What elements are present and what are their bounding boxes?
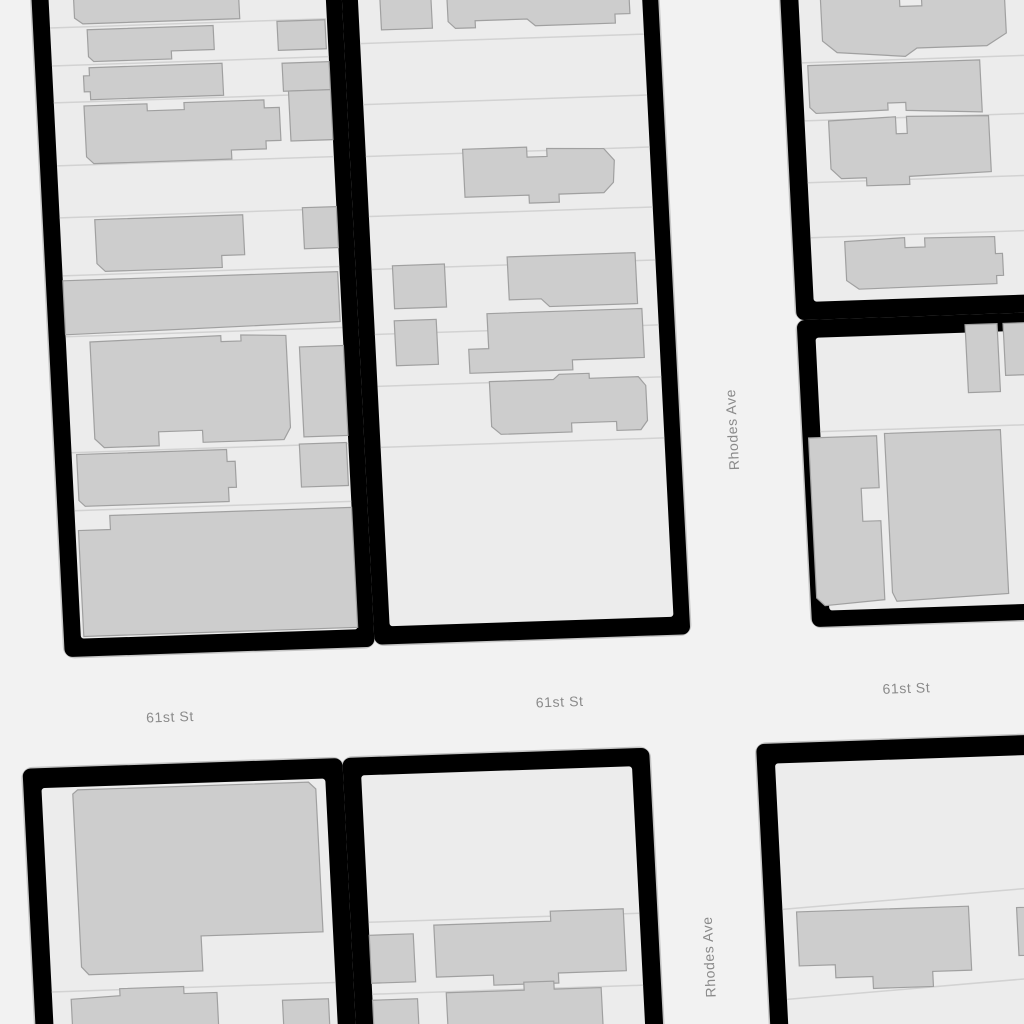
building-footprint [90, 333, 291, 448]
building-footprint [965, 324, 1000, 393]
building-footprint [392, 264, 446, 309]
building-footprint [299, 346, 348, 437]
street-label: 61st St [882, 679, 931, 697]
building-footprint [884, 430, 1008, 602]
building-footprint [78, 507, 358, 636]
building-footprint [378, 0, 432, 30]
map-canvas[interactable]: 61st St61st St61st StRhodes AveRhodes Av… [0, 0, 1024, 1024]
building-footprint [288, 90, 333, 141]
building-footprint [83, 63, 224, 100]
building-footprint [282, 999, 333, 1024]
building-footprint [77, 449, 238, 506]
building-footprint [373, 999, 423, 1024]
building-footprint [277, 20, 326, 51]
building-footprint [507, 253, 638, 308]
building-footprint [302, 207, 338, 249]
building-footprint [809, 436, 885, 606]
street-label: 61st St [535, 693, 584, 711]
building-footprint [299, 443, 348, 488]
building-footprint [1003, 322, 1024, 376]
building-footprint [369, 934, 415, 983]
building-footprint [845, 234, 1004, 289]
building-footprint [394, 319, 438, 365]
map-viewport[interactable]: 61st St61st St61st StRhodes AveRhodes Av… [0, 0, 1024, 1024]
building-footprint [489, 371, 648, 434]
building-footprint [282, 62, 330, 92]
street-label: 61st St [146, 708, 195, 726]
